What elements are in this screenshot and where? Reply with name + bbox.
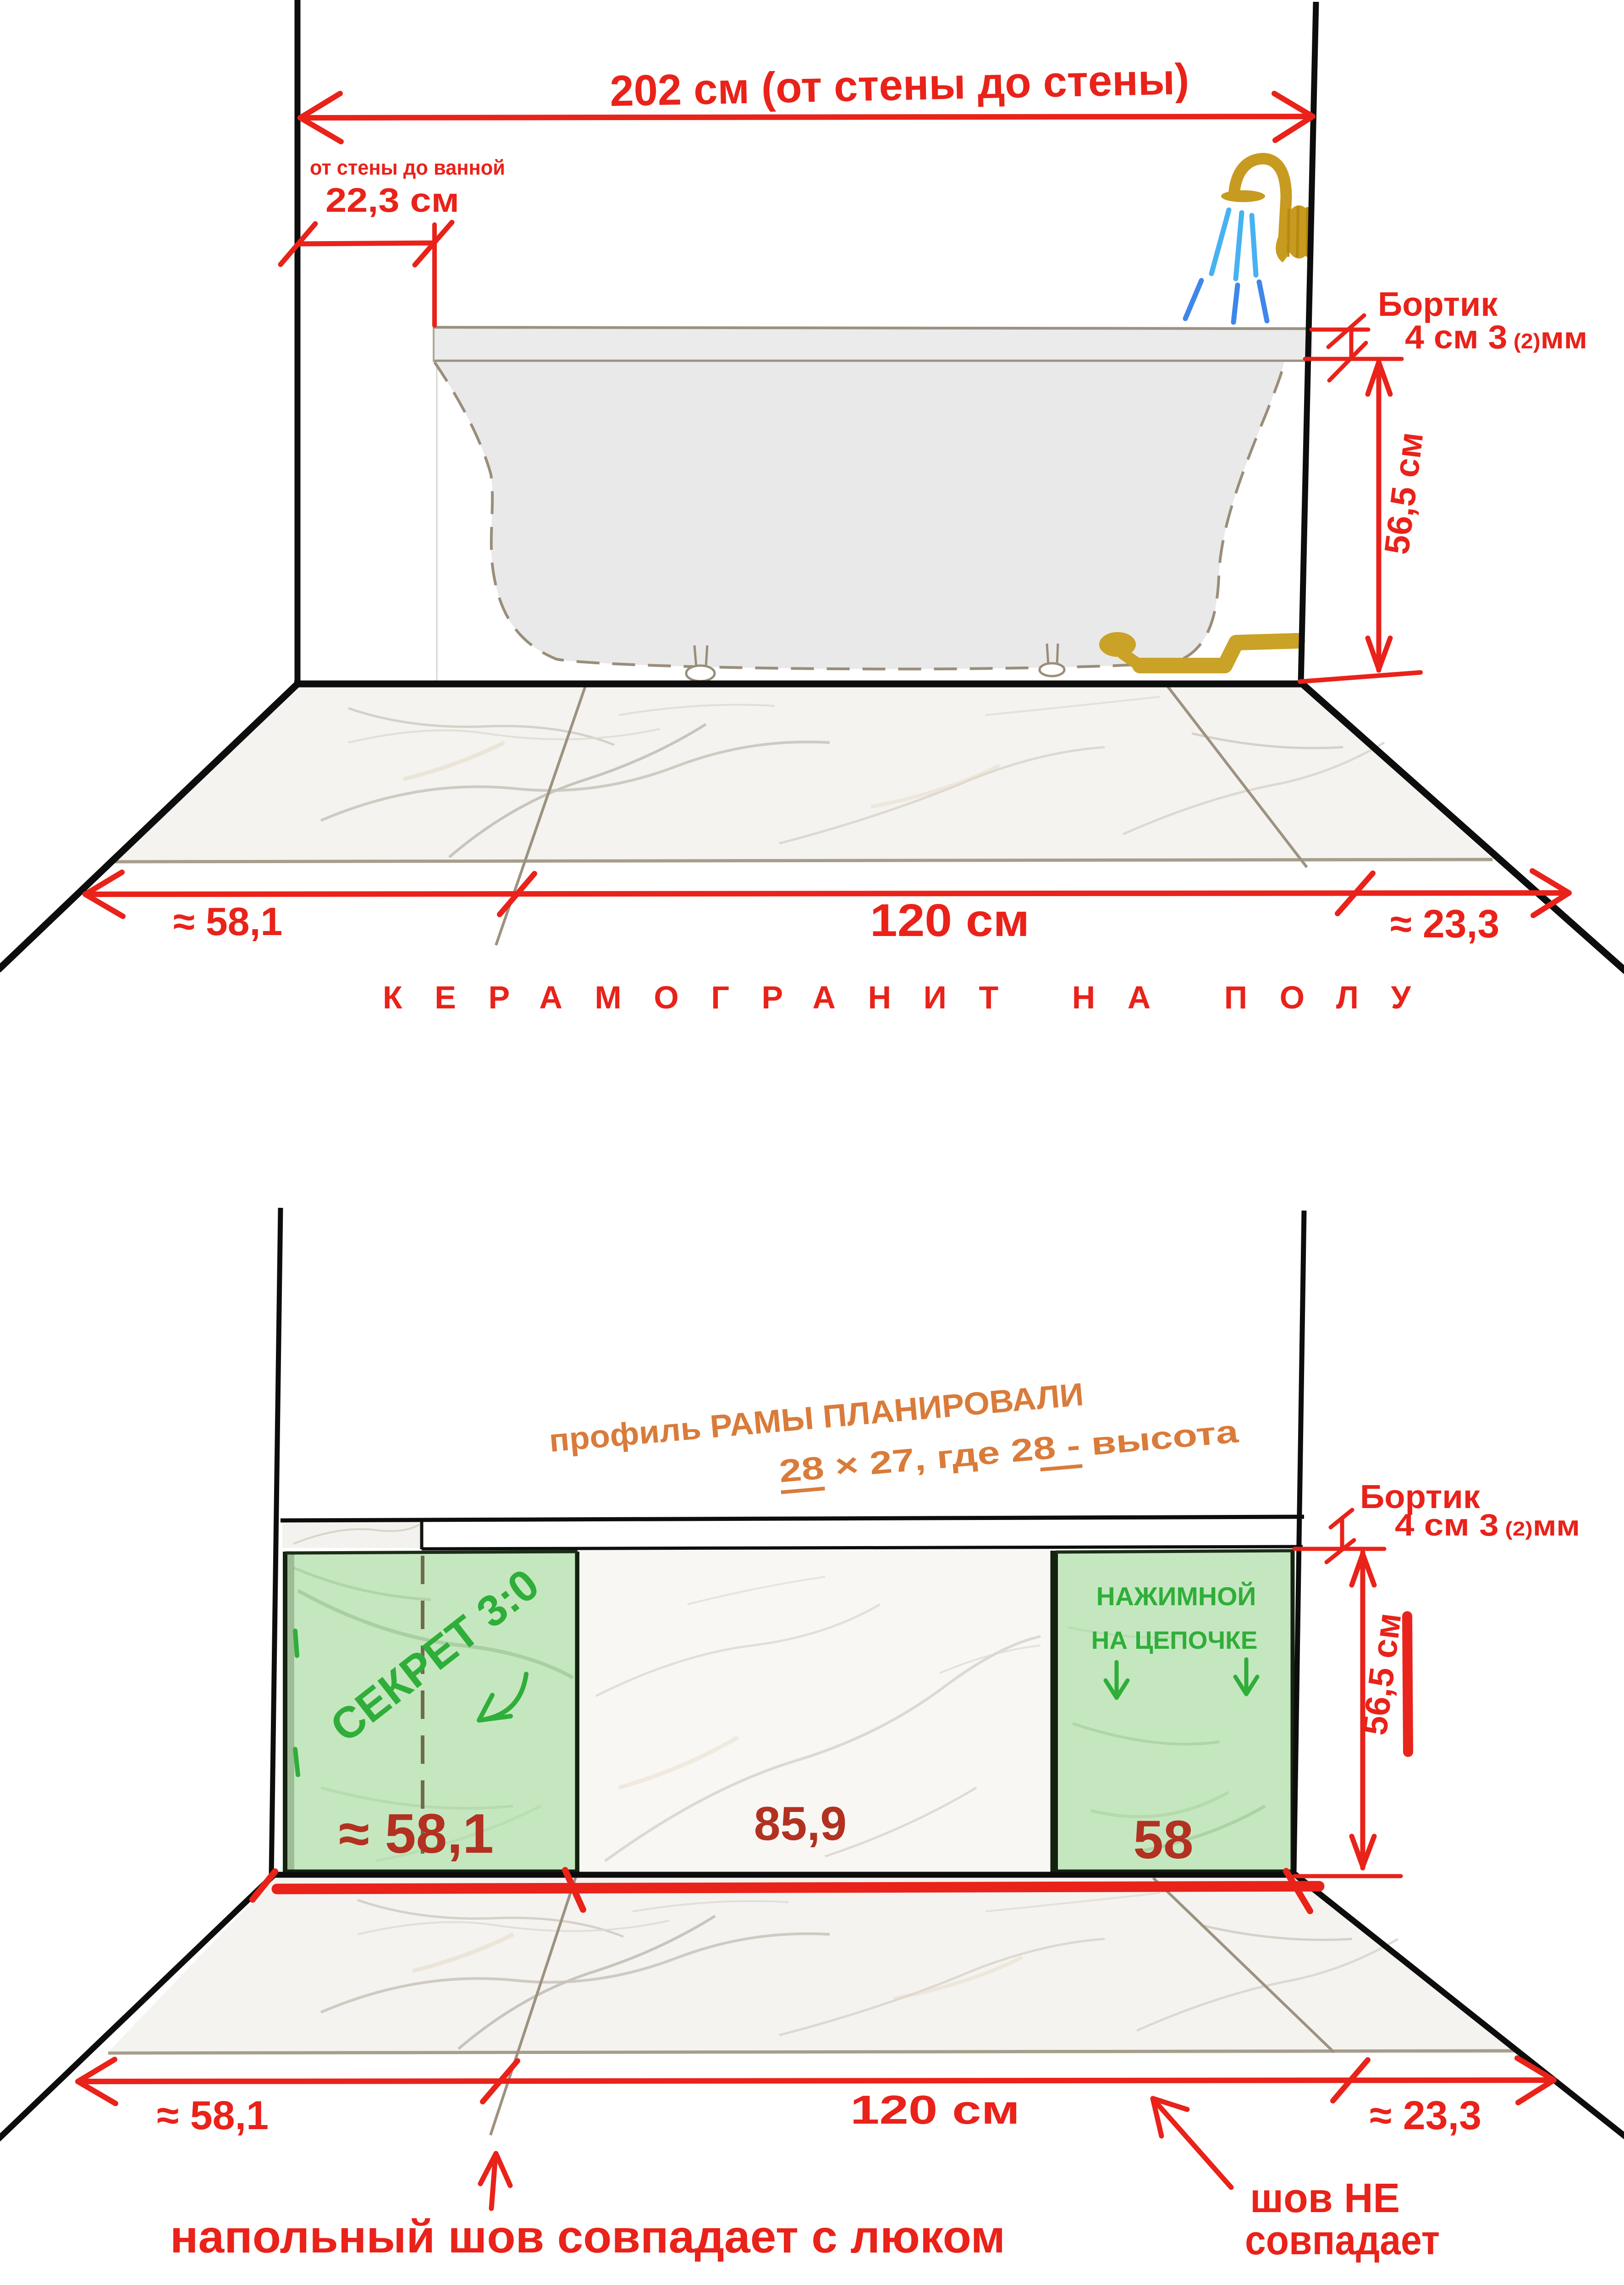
svg-text:НАЖИМНОЙ: НАЖИМНОЙ [1096, 1581, 1256, 1611]
svg-text:≈ 23,3: ≈ 23,3 [1390, 902, 1499, 946]
svg-text:от стены до ванной: от стены до ванной [310, 156, 505, 179]
svg-text:Бортик: Бортик [1378, 285, 1498, 323]
svg-text:120 см: 120 см [870, 895, 1029, 946]
svg-text:22,3 см: 22,3 см [325, 181, 459, 219]
svg-text:совпадает: совпадает [1245, 2218, 1440, 2263]
svg-text:≈ 58,1: ≈ 58,1 [173, 900, 282, 944]
svg-text:85,9: 85,9 [754, 1797, 847, 1850]
svg-text:4 см 3 (2)мм: 4 см 3 (2)мм [1395, 1508, 1580, 1542]
svg-text:4 см 3 (2)мм: 4 см 3 (2)мм [1405, 319, 1587, 356]
svg-text:≈ 23,3: ≈ 23,3 [1370, 2092, 1481, 2138]
svg-text:НА ЦЕПОЧКЕ: НА ЦЕПОЧКЕ [1091, 1626, 1258, 1654]
svg-text:≈ 58,1: ≈ 58,1 [339, 1802, 494, 1865]
svg-text:120 см: 120 см [850, 2087, 1020, 2132]
svg-text:58: 58 [1133, 1810, 1193, 1870]
svg-text:шов НЕ: шов НЕ [1250, 2175, 1400, 2221]
svg-text:≈ 58,1: ≈ 58,1 [157, 2092, 269, 2138]
svg-text:напольный шов совпадает с лю: напольный шов совпадает с люком [170, 2211, 1005, 2263]
